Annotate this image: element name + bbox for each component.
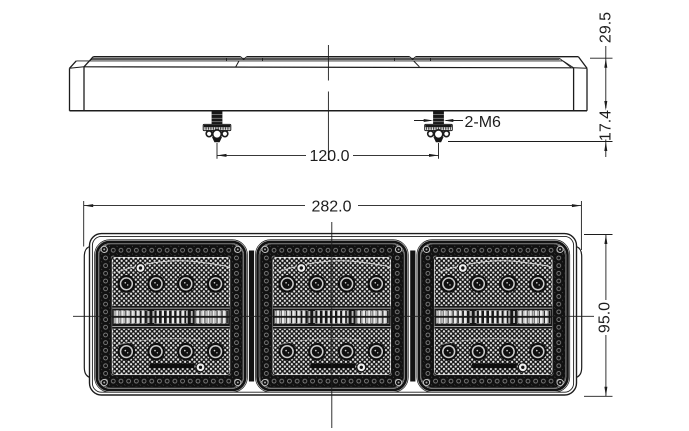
svg-text:17.4: 17.4 — [598, 110, 615, 141]
svg-text:29.5: 29.5 — [598, 12, 615, 43]
svg-text:120.0: 120.0 — [309, 148, 349, 165]
svg-text:95.0: 95.0 — [597, 302, 614, 333]
svg-text:2-M6: 2-M6 — [465, 114, 502, 131]
svg-text:282.0: 282.0 — [311, 198, 351, 215]
